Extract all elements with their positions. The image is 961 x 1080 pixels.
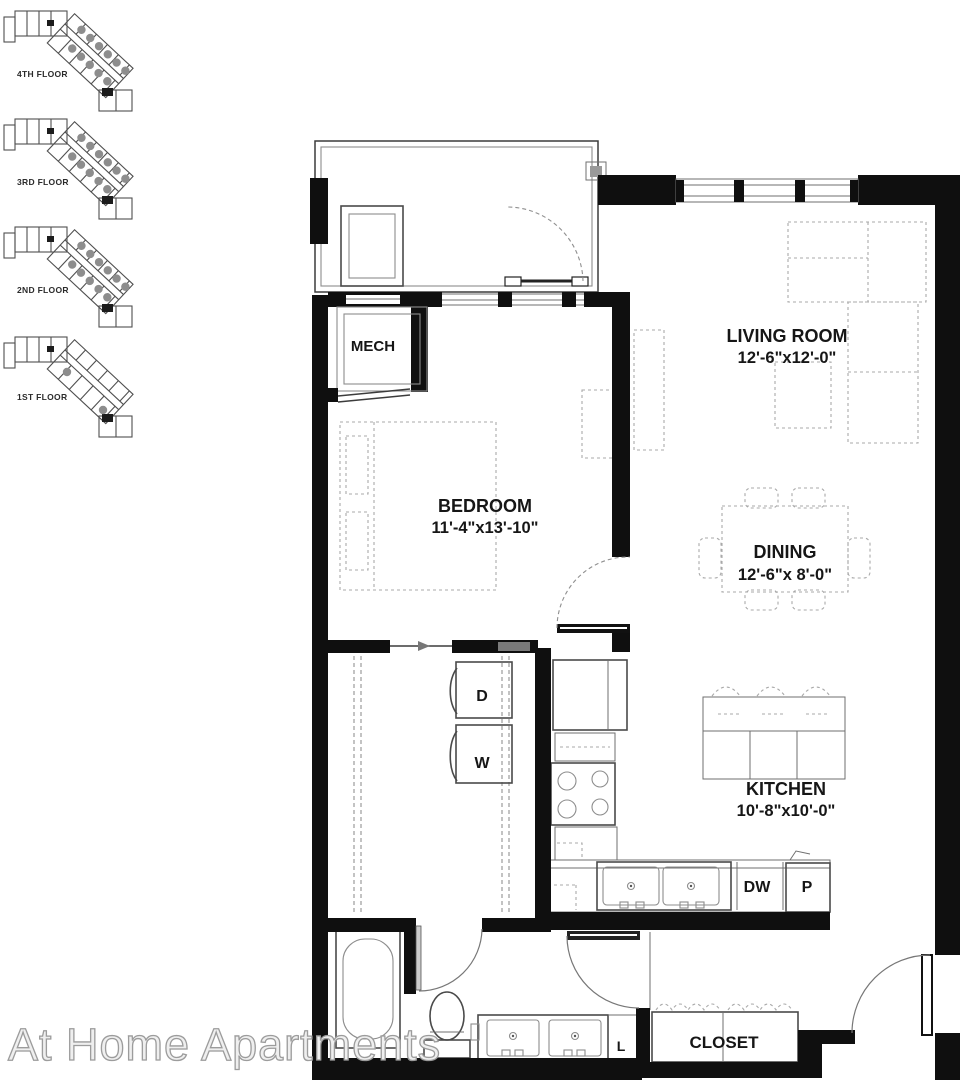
- refrigerator: [553, 660, 627, 730]
- floor-key-item-2nd: 2ND FLOOR: [4, 227, 133, 327]
- washer-label: W: [474, 755, 490, 772]
- dining-dims: 12'-6"x 8'-0": [738, 566, 832, 584]
- living-room-dims: 12'-6"x12'-0": [738, 349, 837, 367]
- building-outline-1st: [4, 337, 133, 437]
- washer-box: [456, 725, 512, 783]
- walls: [310, 175, 960, 1080]
- linen-label: L: [617, 1038, 626, 1054]
- vanity: [478, 1015, 608, 1060]
- kitchen-label: KITCHEN: [746, 779, 826, 799]
- kitchen-counter: [548, 851, 830, 912]
- bedroom-furniture: [340, 390, 626, 590]
- floor-key-item-4th: 4TH FLOOR: [4, 11, 133, 111]
- floorplan-drawing: 4TH FLOOR 3RD FLOOR 2ND FLOOR 1ST FLOOR: [0, 0, 961, 1080]
- floor-key-item-1st: 1ST FLOOR: [4, 337, 133, 437]
- hall-door: [567, 931, 640, 1008]
- hanging-clothes: [656, 1004, 720, 1010]
- coffee-table: [775, 362, 831, 428]
- balcony: [315, 141, 606, 292]
- bedroom-door: [557, 557, 630, 633]
- floor-label-4th: 4TH FLOOR: [17, 69, 68, 79]
- unit-plan: LIVING ROOM 12'-6"x12'-0" BEDROOM 11'-4"…: [310, 141, 960, 1080]
- dining-label: DINING: [754, 542, 817, 562]
- floor-key-item-3rd: 3RD FLOOR: [4, 119, 133, 219]
- living-room-label: LIVING ROOM: [727, 326, 848, 346]
- kitchen-sink: [597, 862, 731, 910]
- bedroom-label: BEDROOM: [438, 496, 532, 516]
- bathroom-door: [416, 926, 482, 991]
- kitchen-appliances: [551, 660, 627, 860]
- kitchen-dims: 10'-8"x10'-0": [737, 802, 836, 820]
- floor-label-2nd: 2ND FLOOR: [17, 285, 69, 295]
- bedroom-dims: 11'-4"x13'-10": [432, 519, 539, 537]
- watermark: At Home Apartments: [8, 1022, 441, 1067]
- floor-label-1st: 1ST FLOOR: [17, 392, 67, 402]
- room-labels: LIVING ROOM 12'-6"x12'-0" BEDROOM 11'-4"…: [351, 326, 848, 1054]
- entry-door: [852, 955, 932, 1035]
- pantry-label: P: [802, 879, 813, 896]
- mech-label: MECH: [351, 338, 395, 355]
- balcony-door: [505, 207, 588, 286]
- kitchen-island: [703, 687, 845, 779]
- closet-label: CLOSET: [690, 1033, 760, 1052]
- floor-key: 4TH FLOOR 3RD FLOOR 2ND FLOOR 1ST FLOOR: [4, 11, 133, 437]
- dryer-label: D: [476, 688, 488, 705]
- floor-label-3rd: 3RD FLOOR: [17, 177, 69, 187]
- floorplan-page: 4TH FLOOR 3RD FLOOR 2ND FLOOR 1ST FLOOR: [0, 0, 961, 1080]
- media-console: [634, 330, 664, 450]
- dishwasher-label: DW: [744, 879, 772, 896]
